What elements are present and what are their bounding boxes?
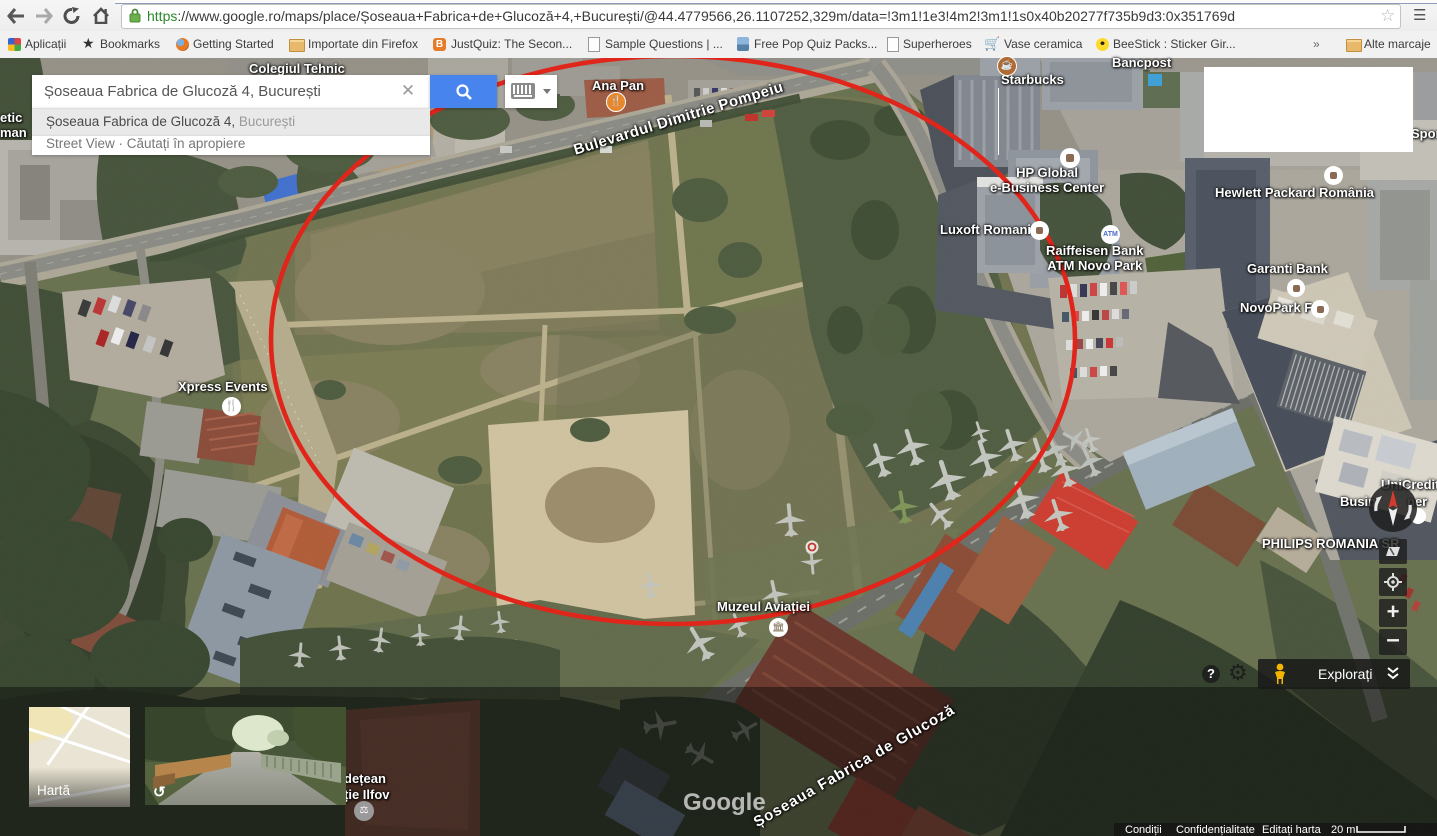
svg-text:Editați harta: Editați harta <box>1262 824 1322 836</box>
svg-text:20 m: 20 m <box>1331 824 1355 836</box>
svg-text:Confidențialitate: Confidențialitate <box>1176 824 1255 836</box>
svg-text:Google: Google <box>683 789 766 816</box>
svg-text:Condiții: Condiții <box>1125 824 1162 836</box>
